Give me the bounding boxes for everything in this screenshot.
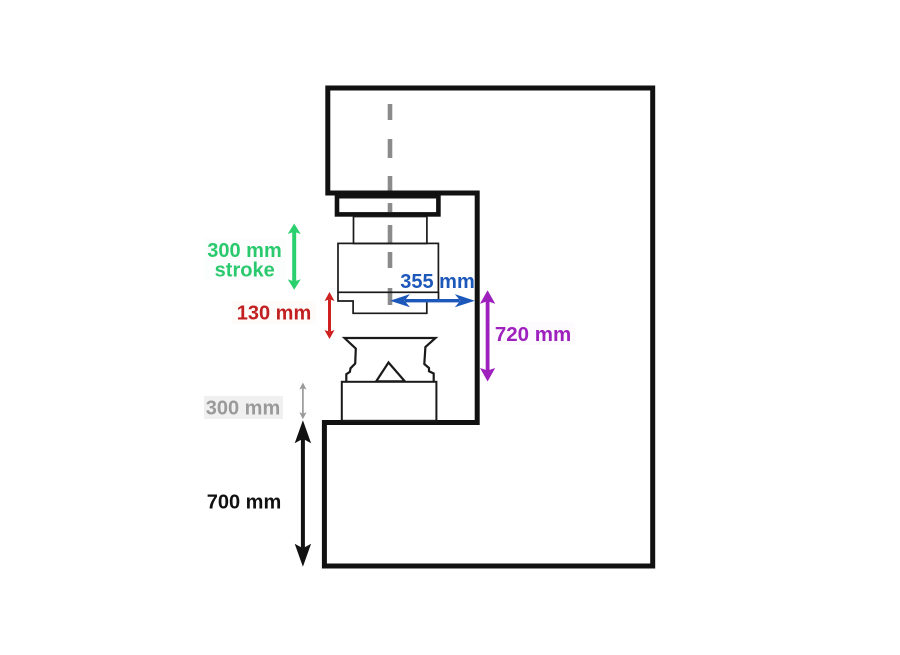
svg-text:300 mm: 300 mm	[206, 398, 281, 420]
svg-text:720 mm: 720 mm	[495, 323, 571, 346]
svg-text:130 mm: 130 mm	[237, 303, 312, 325]
svg-text:stroke: stroke	[215, 260, 275, 282]
svg-text:700 mm: 700 mm	[207, 492, 282, 514]
svg-text:355 mm: 355 mm	[400, 271, 475, 293]
